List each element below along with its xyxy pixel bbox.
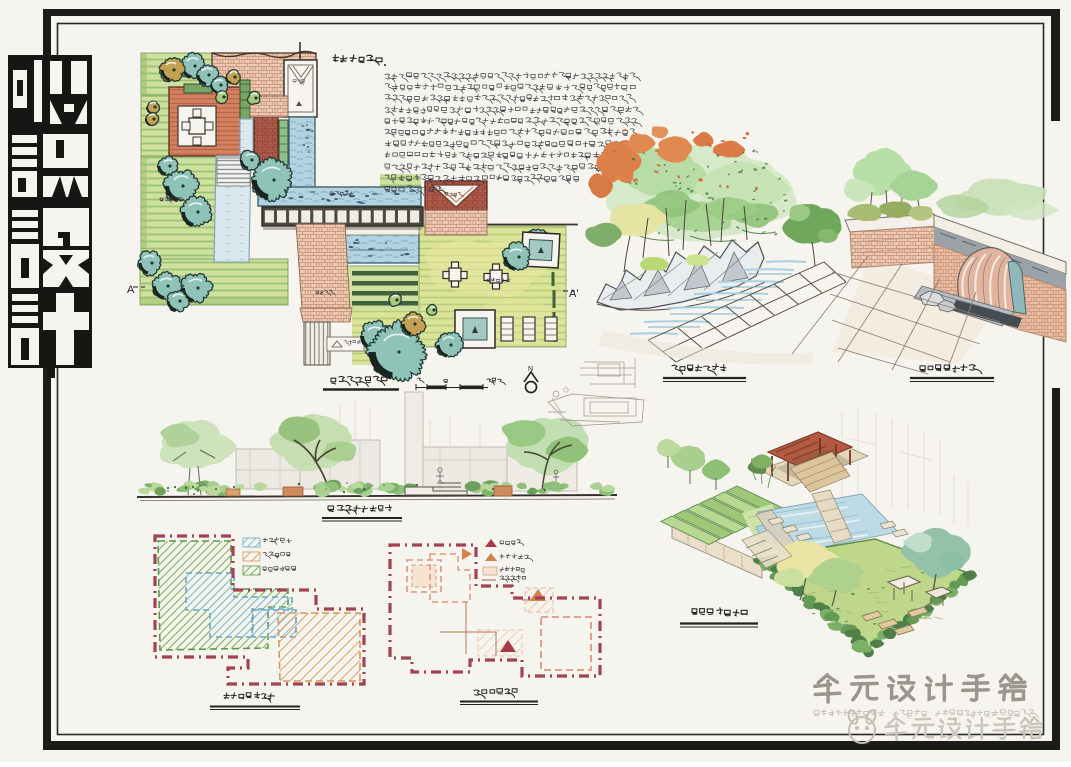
svg-text:A: A <box>127 284 135 296</box>
svg-text:A': A' <box>569 288 578 300</box>
svg-text:N: N <box>528 366 533 373</box>
